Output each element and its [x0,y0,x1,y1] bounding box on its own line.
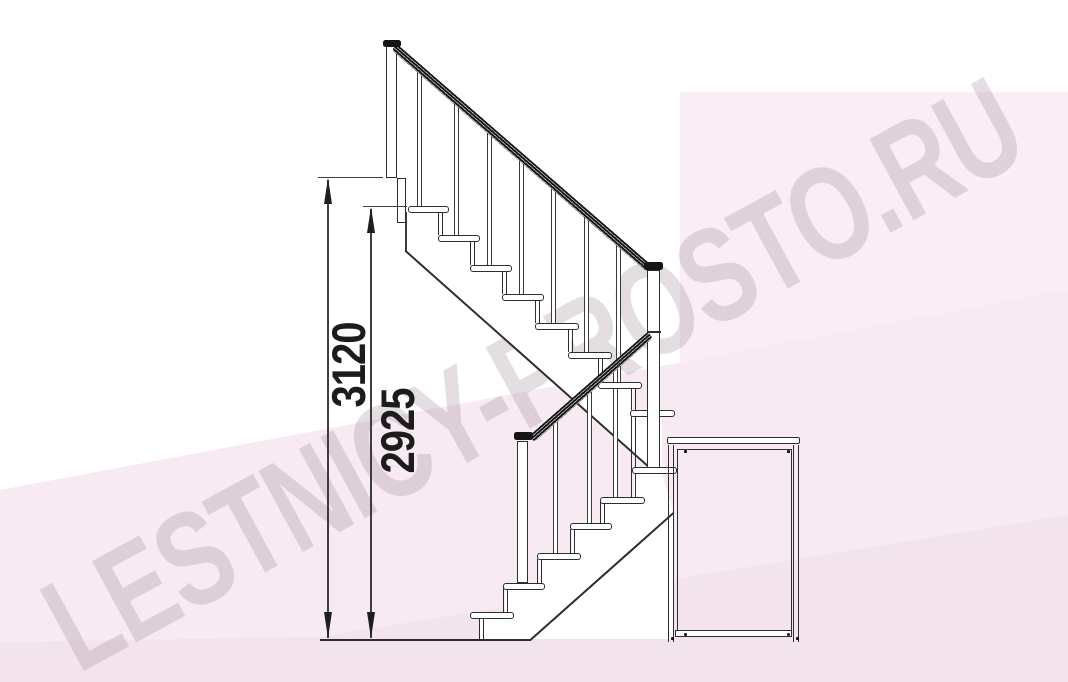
tread [600,497,645,504]
riser [502,270,507,294]
arrow-up-icon [324,178,332,204]
baluster [551,187,556,323]
support-box-right-leg [793,445,799,642]
arrow-up-icon [367,207,375,233]
riser [535,299,540,323]
arrow-down-icon [324,612,332,638]
tread [535,323,579,330]
tread [408,206,449,213]
baluster [417,70,422,206]
dimension-label-3120: 3120 [323,323,376,408]
tread [537,553,581,560]
tread [438,235,480,242]
support-box-bottom-rail [675,630,792,637]
riser [503,588,508,612]
support-box-inner-frame [677,449,792,631]
lower-post-cap [514,432,533,440]
central-post-cap [644,262,663,270]
lower-newel-post [517,441,528,583]
screw-dot [796,637,799,640]
baluster [519,159,524,294]
tread [503,583,545,590]
tread [570,523,612,530]
screw-dot [684,450,687,453]
central-newel-post [647,270,660,468]
tread [470,612,514,619]
tread [598,382,642,389]
tread [470,265,512,272]
riser-turn [631,416,636,497]
floor-line [320,639,531,641]
baluster [487,131,492,265]
arrow-down-icon [367,612,375,638]
dimension-line-3120 [327,180,329,638]
screw-dot [684,633,687,636]
riser [438,212,443,235]
support-box-top [667,437,800,444]
screw-dot [787,633,790,636]
riser [479,617,484,640]
top-post-cap [383,40,401,47]
riser [600,502,605,523]
baluster [454,102,459,235]
riser [631,387,636,410]
landing-support-post [397,178,406,223]
staircase-technical-drawing: LESTNICY-PROSTO.RU [0,0,1068,682]
riser [470,241,475,265]
baluster [584,215,589,352]
tread [502,294,544,301]
riser [568,328,573,352]
baluster [587,392,592,523]
dimension-label-2925: 2925 [372,389,425,474]
top-newel-post [386,46,397,178]
tread [568,352,612,359]
riser [570,529,575,553]
support-box-left-leg [668,445,674,642]
baluster [553,422,558,553]
screw-dot [787,450,790,453]
riser [537,559,542,583]
screw-dot [671,637,674,640]
